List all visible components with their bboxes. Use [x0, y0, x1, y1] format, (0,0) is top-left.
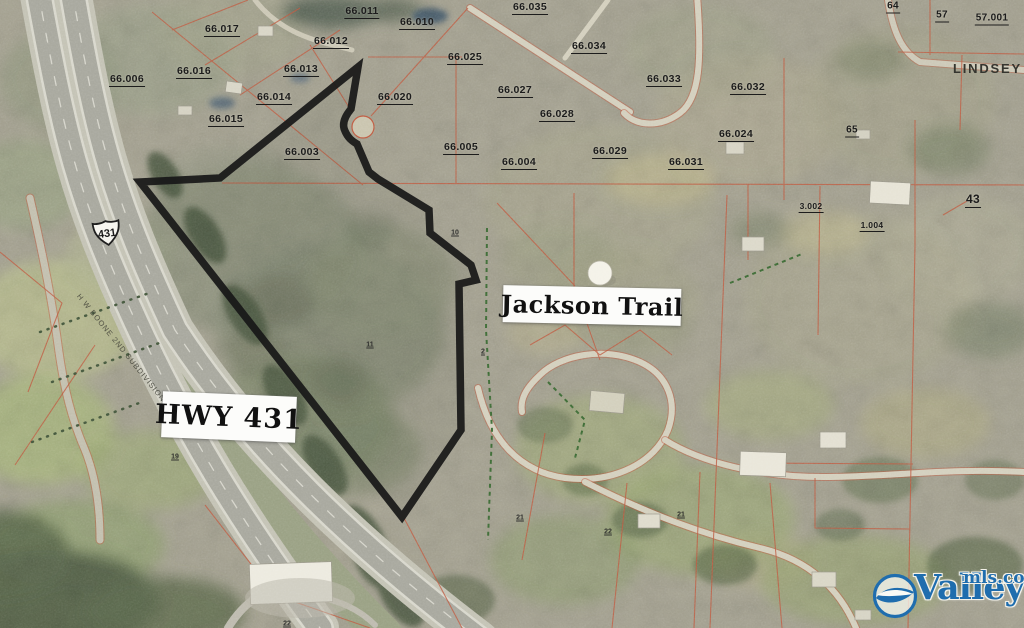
valleymls-domain-text: mls.com — [963, 568, 1024, 588]
lot-number-label: 22 — [604, 529, 612, 536]
valleymls-logo-icon — [872, 573, 918, 619]
parcel-number-label: 66.003 — [284, 146, 320, 160]
jackson-trail-label-text: Jackson Trail — [500, 289, 683, 322]
parcel-number-label: 66.031 — [668, 156, 704, 170]
parcel-number-label: 57.001 — [975, 13, 1009, 26]
parcel-number-label: 66.016 — [176, 65, 212, 79]
aerial-parcel-map: 66.01766.01166.01066.01266.01666.01366.0… — [0, 0, 1024, 628]
parcel-number-label: 66.032 — [730, 81, 766, 95]
parcel-number-label: 66.017 — [204, 23, 240, 37]
parcel-number-label: 66.025 — [447, 51, 483, 65]
lot-number-label: 2 — [481, 349, 485, 356]
parcel-number-label: 65 — [845, 125, 859, 138]
parcel-number-label: 64 — [886, 1, 900, 14]
parcel-number-label: 43 — [965, 192, 981, 208]
parcel-number-label: 66.015 — [208, 113, 244, 127]
parcel-number-label: 66.034 — [571, 40, 607, 54]
hwy-431-label: HWY 431 — [161, 391, 297, 443]
us-route-431-shield: 431 — [89, 217, 125, 249]
parcel-number-label: 1.004 — [860, 220, 885, 232]
valleymls-watermark: Valley mls.com — [870, 565, 1024, 623]
parcel-number-label: 66.005 — [443, 141, 479, 155]
lot-number-label: 19 — [171, 454, 179, 461]
lot-number-label: 11 — [366, 342, 373, 349]
parcel-number-label: 3.002 — [799, 201, 824, 213]
lot-number-label: 10 — [451, 230, 459, 237]
parcel-number-label: 66.033 — [646, 73, 682, 87]
parcel-number-label: 57 — [935, 10, 949, 23]
parcel-number-label: 66.011 — [344, 5, 379, 19]
parcel-number-label: 66.027 — [497, 84, 533, 98]
route-shield-number: 431 — [97, 227, 117, 241]
jackson-trail-label: Jackson Trail — [503, 285, 682, 326]
parcel-number-label: 66.028 — [539, 108, 575, 122]
lot-number-label: 21 — [677, 512, 685, 519]
parcel-number-label: 66.014 — [256, 91, 292, 105]
parcel-number-label: 66.013 — [283, 63, 319, 77]
parcel-number-label: 66.020 — [377, 91, 413, 105]
lot-number-label: 22 — [283, 621, 291, 628]
parcel-number-label: 66.010 — [399, 16, 435, 30]
parcel-number-label: 66.035 — [512, 1, 548, 15]
parcel-number-label: 66.004 — [501, 156, 537, 170]
parcel-number-label: 66.029 — [592, 145, 628, 159]
parcel-number-label: 66.006 — [109, 73, 145, 87]
lot-number-label: 21 — [516, 515, 524, 522]
street-name-lindsey-lane: LINDSEY LA — [953, 61, 1024, 76]
hwy-431-label-text: HWY 431 — [154, 398, 303, 435]
parcel-number-label: 66.012 — [313, 35, 349, 49]
parcel-number-label: 66.024 — [718, 128, 754, 142]
